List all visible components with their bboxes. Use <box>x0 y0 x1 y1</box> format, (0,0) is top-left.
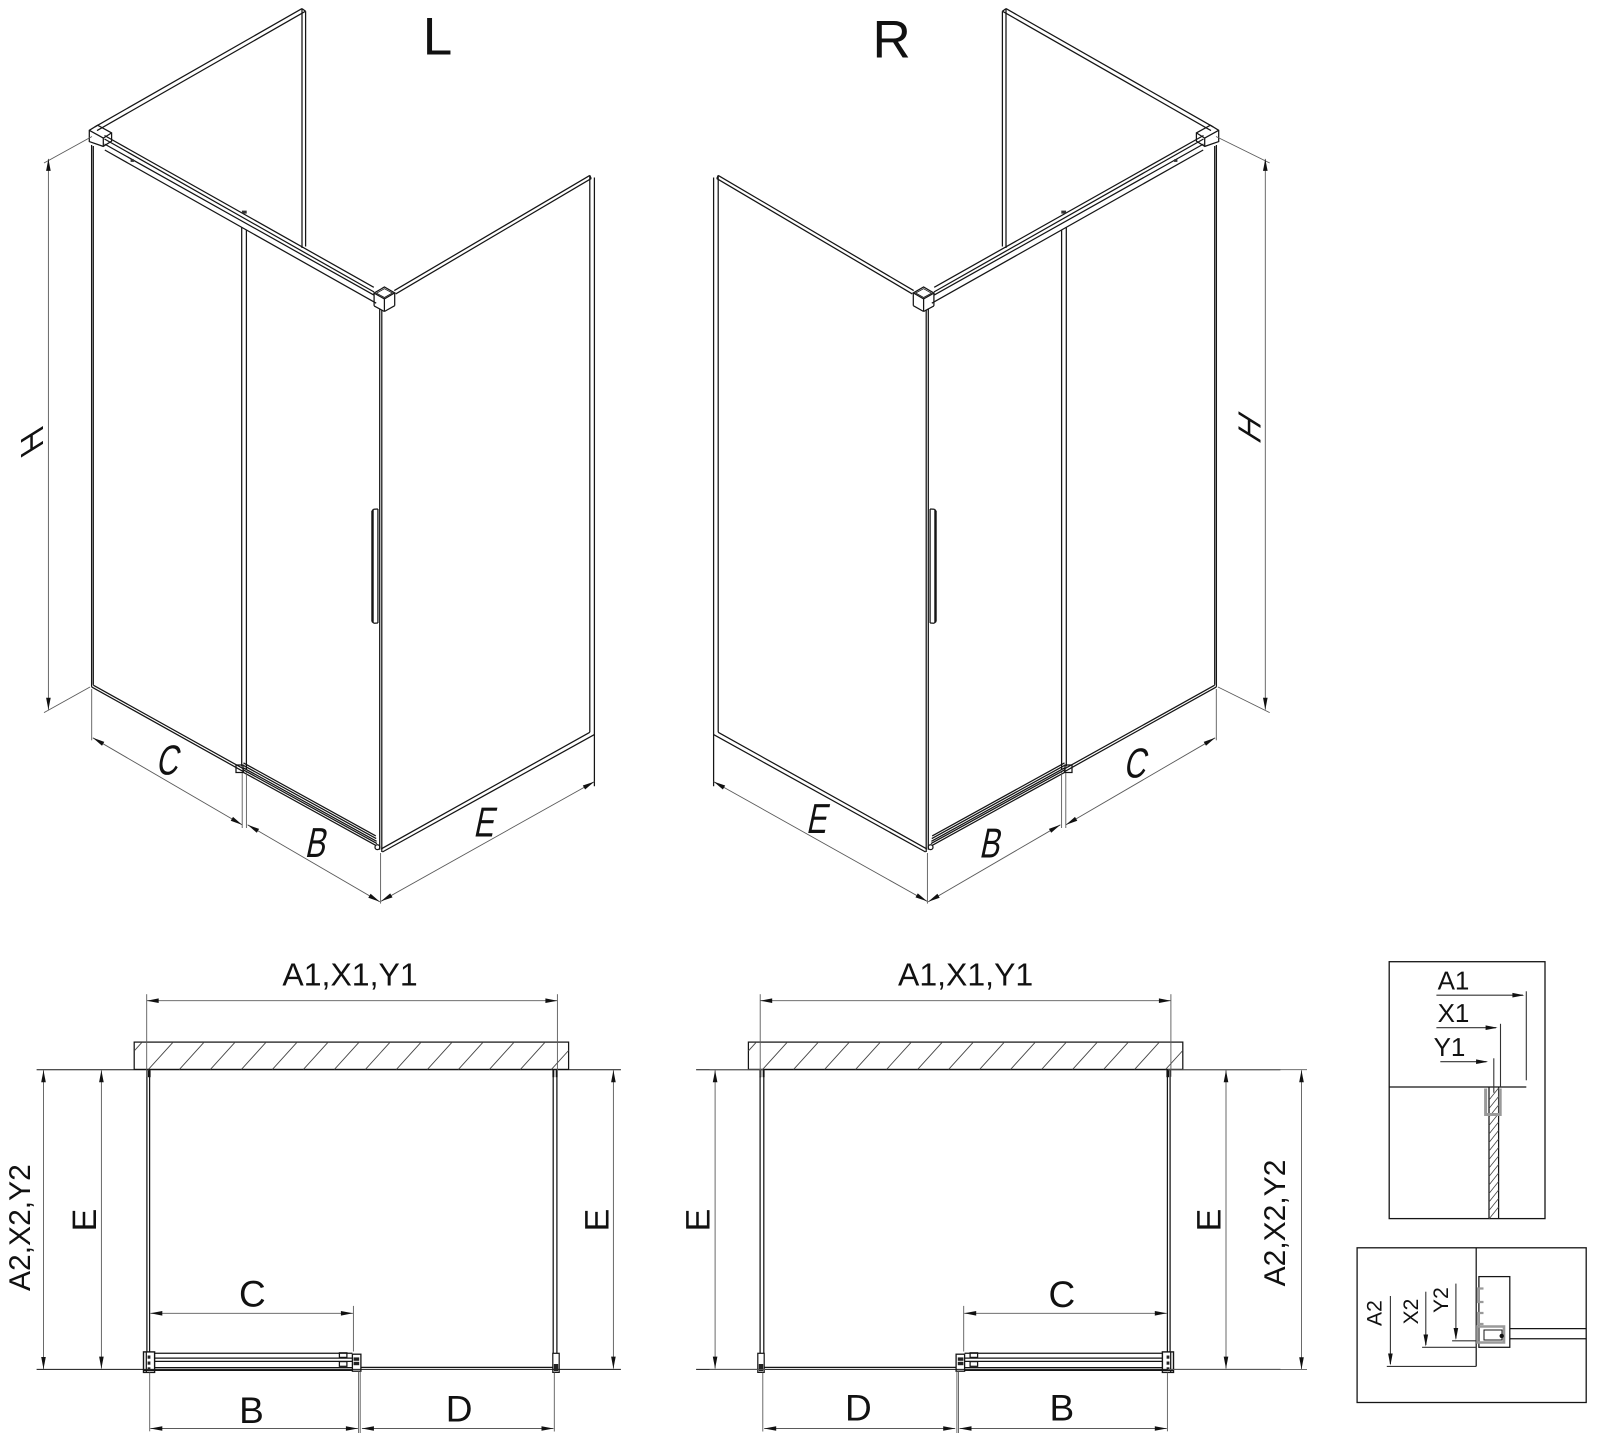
svg-text:C: C <box>1049 1274 1076 1315</box>
svg-text:E: E <box>578 1209 616 1232</box>
svg-text:A2,X2,Y2: A2,X2,Y2 <box>1259 1160 1292 1287</box>
svg-text:B: B <box>239 1390 264 1431</box>
svg-text:D: D <box>845 1388 872 1429</box>
svg-text:E: E <box>680 1209 718 1232</box>
svg-text:A1,X1,Y1: A1,X1,Y1 <box>282 957 417 993</box>
svg-text:E: E <box>1191 1209 1229 1232</box>
svg-text:R: R <box>872 11 910 70</box>
svg-text:D: D <box>446 1389 473 1430</box>
svg-text:L: L <box>423 8 452 67</box>
svg-text:C: C <box>239 1274 266 1315</box>
svg-text:E: E <box>66 1209 104 1232</box>
svg-text:A2: A2 <box>1363 1300 1386 1326</box>
svg-text:X2: X2 <box>1400 1299 1423 1325</box>
svg-text:Y1: Y1 <box>1434 1032 1466 1062</box>
svg-text:Y2: Y2 <box>1430 1287 1453 1313</box>
svg-text:A1: A1 <box>1438 966 1470 996</box>
svg-text:B: B <box>1050 1388 1075 1429</box>
svg-text:X1: X1 <box>1438 998 1470 1028</box>
svg-text:A1,X1,Y1: A1,X1,Y1 <box>898 957 1033 993</box>
svg-text:A2,X2,Y2: A2,X2,Y2 <box>4 1164 37 1291</box>
